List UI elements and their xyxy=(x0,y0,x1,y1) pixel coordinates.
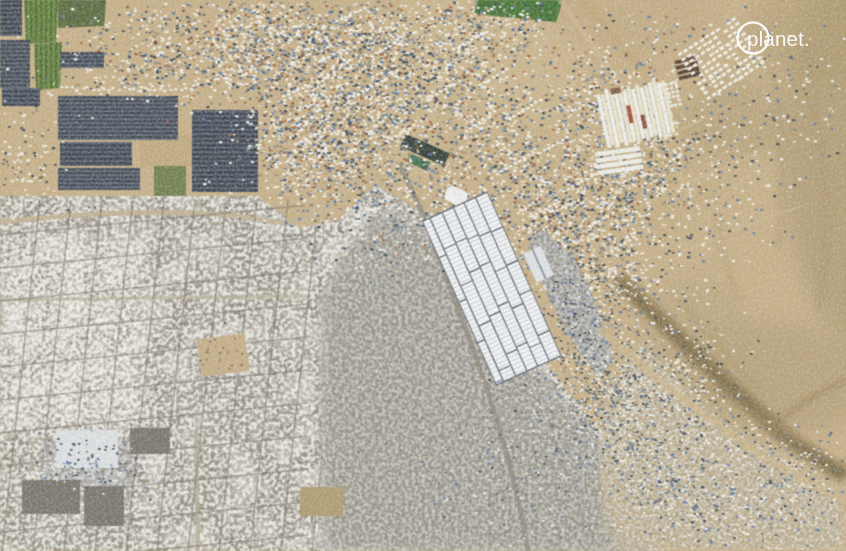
svg-text:planet.: planet. xyxy=(747,28,810,51)
